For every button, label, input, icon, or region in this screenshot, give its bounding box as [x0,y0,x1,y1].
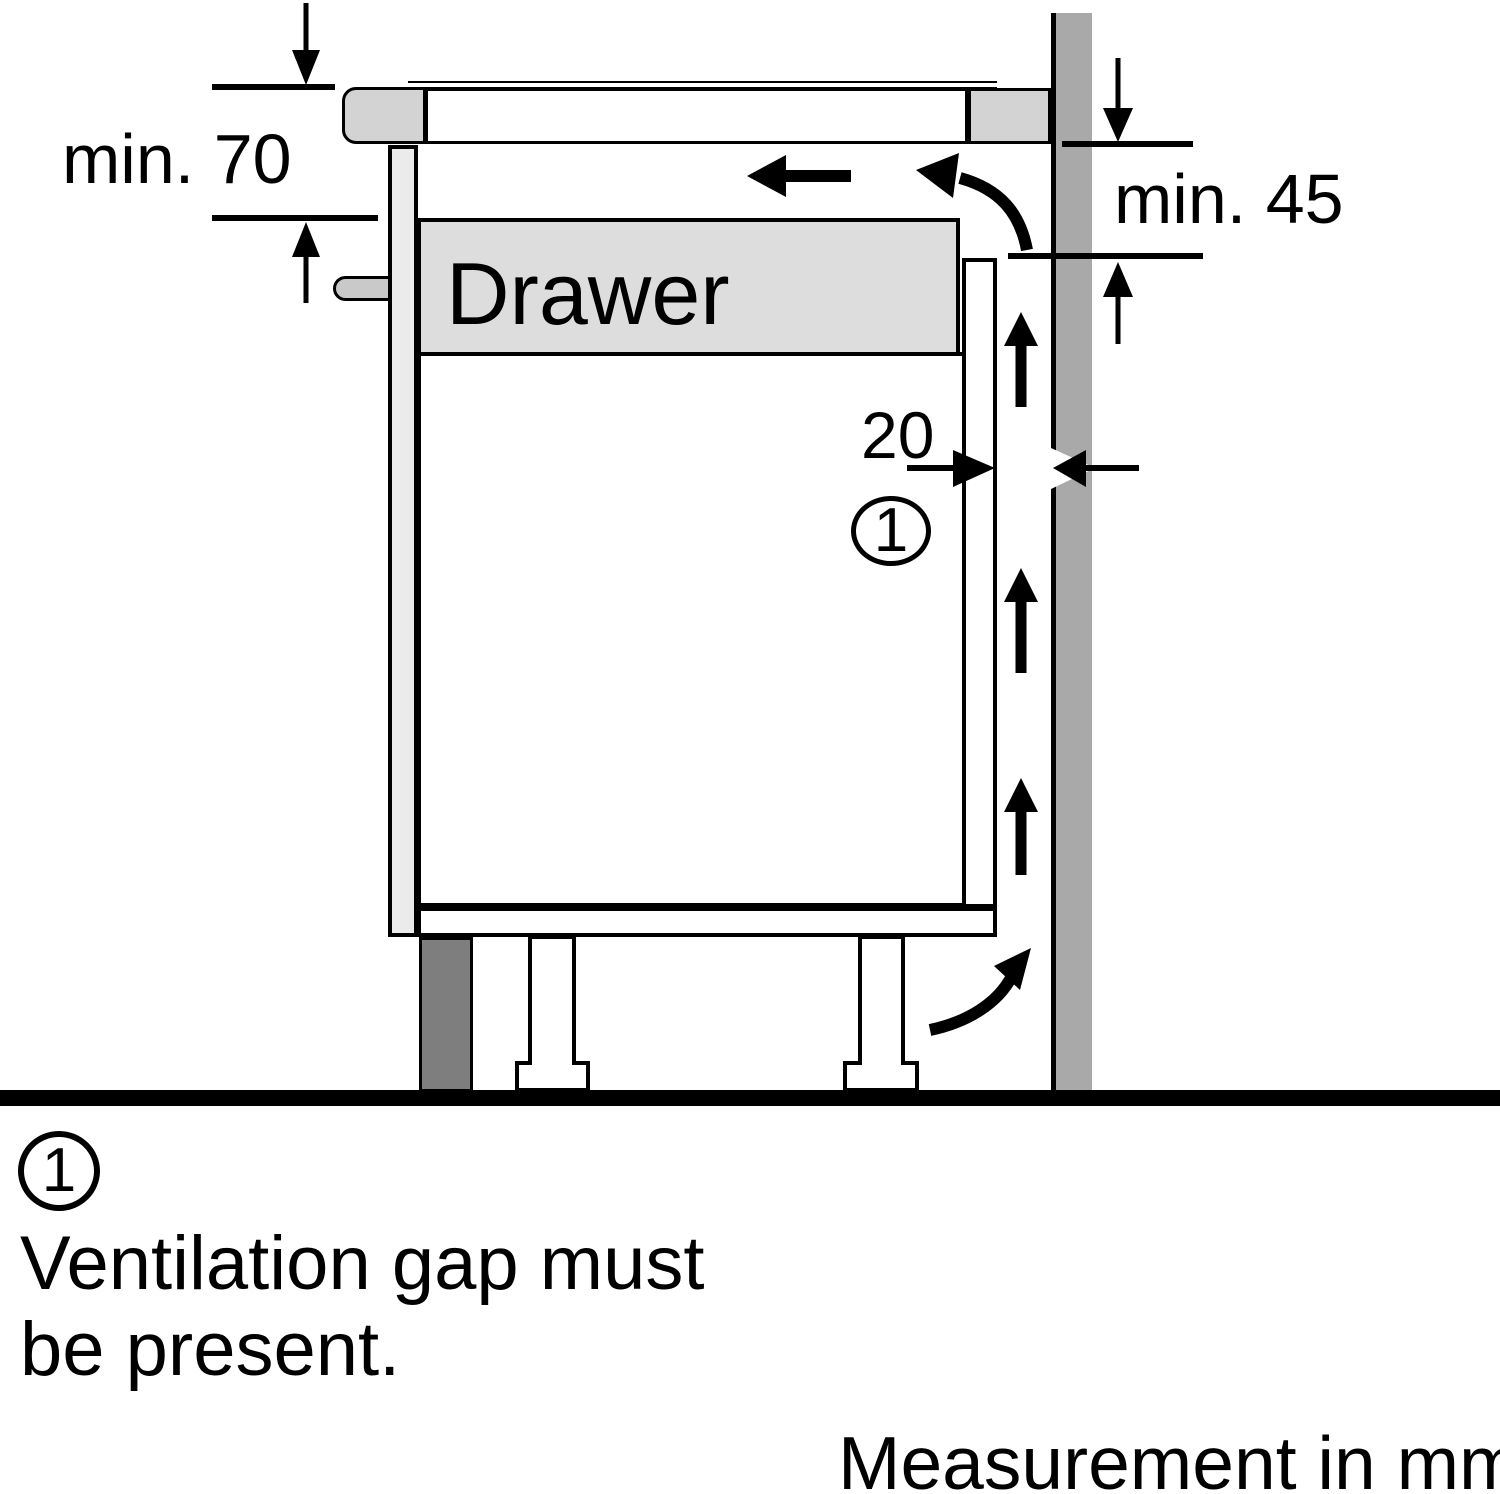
airflow-arrow-up-1 [1004,312,1038,407]
min45-arrow-up [1103,262,1133,344]
min70-label: min. 70 [62,124,292,194]
airflow-arrow-up-3 [1004,778,1038,875]
right-leg [845,937,917,1090]
left-leg [517,937,588,1090]
min70-lower-extension-line [212,215,378,221]
cabinet-bottom-shelf [417,907,997,937]
footnote-text-line2: be present. [20,1312,400,1388]
min45-arrow-down [1103,58,1133,142]
hob-body [425,88,968,144]
airflow-arrow-up-2 [1004,568,1038,673]
plinth [419,937,473,1092]
footnote-marker-circle: 1 [18,1131,100,1211]
min70-arrow-down [292,3,320,85]
footnote-marker-digit: 1 [42,1140,76,1202]
wall [1051,13,1092,1092]
cabinet-front-panel [388,145,418,937]
drawer-label: Drawer [446,250,730,338]
airflow-arrow-left [747,155,851,197]
hob-left-trim [342,87,426,144]
min70-arrow-up [292,222,320,303]
installation-diagram: Drawer min. 70 min. 45 20 1 1 Ventilatio… [0,0,1500,1494]
floor-line [0,1090,1500,1106]
hob-glass [408,81,997,89]
callout-1-digit: 1 [874,500,908,562]
gap20-label: 20 [861,402,934,468]
hob-right-trim [968,88,1051,144]
min70-upper-extension-line [212,84,335,90]
cabinet-back-panel [962,258,997,908]
drawer-handle [333,276,393,301]
min45-label: min. 45 [1114,164,1344,234]
footnote-text-line1: Ventilation gap must [20,1226,704,1302]
units-label: Measurement in mm [838,1426,1500,1494]
min45-lower-extension-line [1008,253,1203,259]
callout-1-circle: 1 [851,496,931,566]
airflow-curve-bottom [930,948,1031,1030]
